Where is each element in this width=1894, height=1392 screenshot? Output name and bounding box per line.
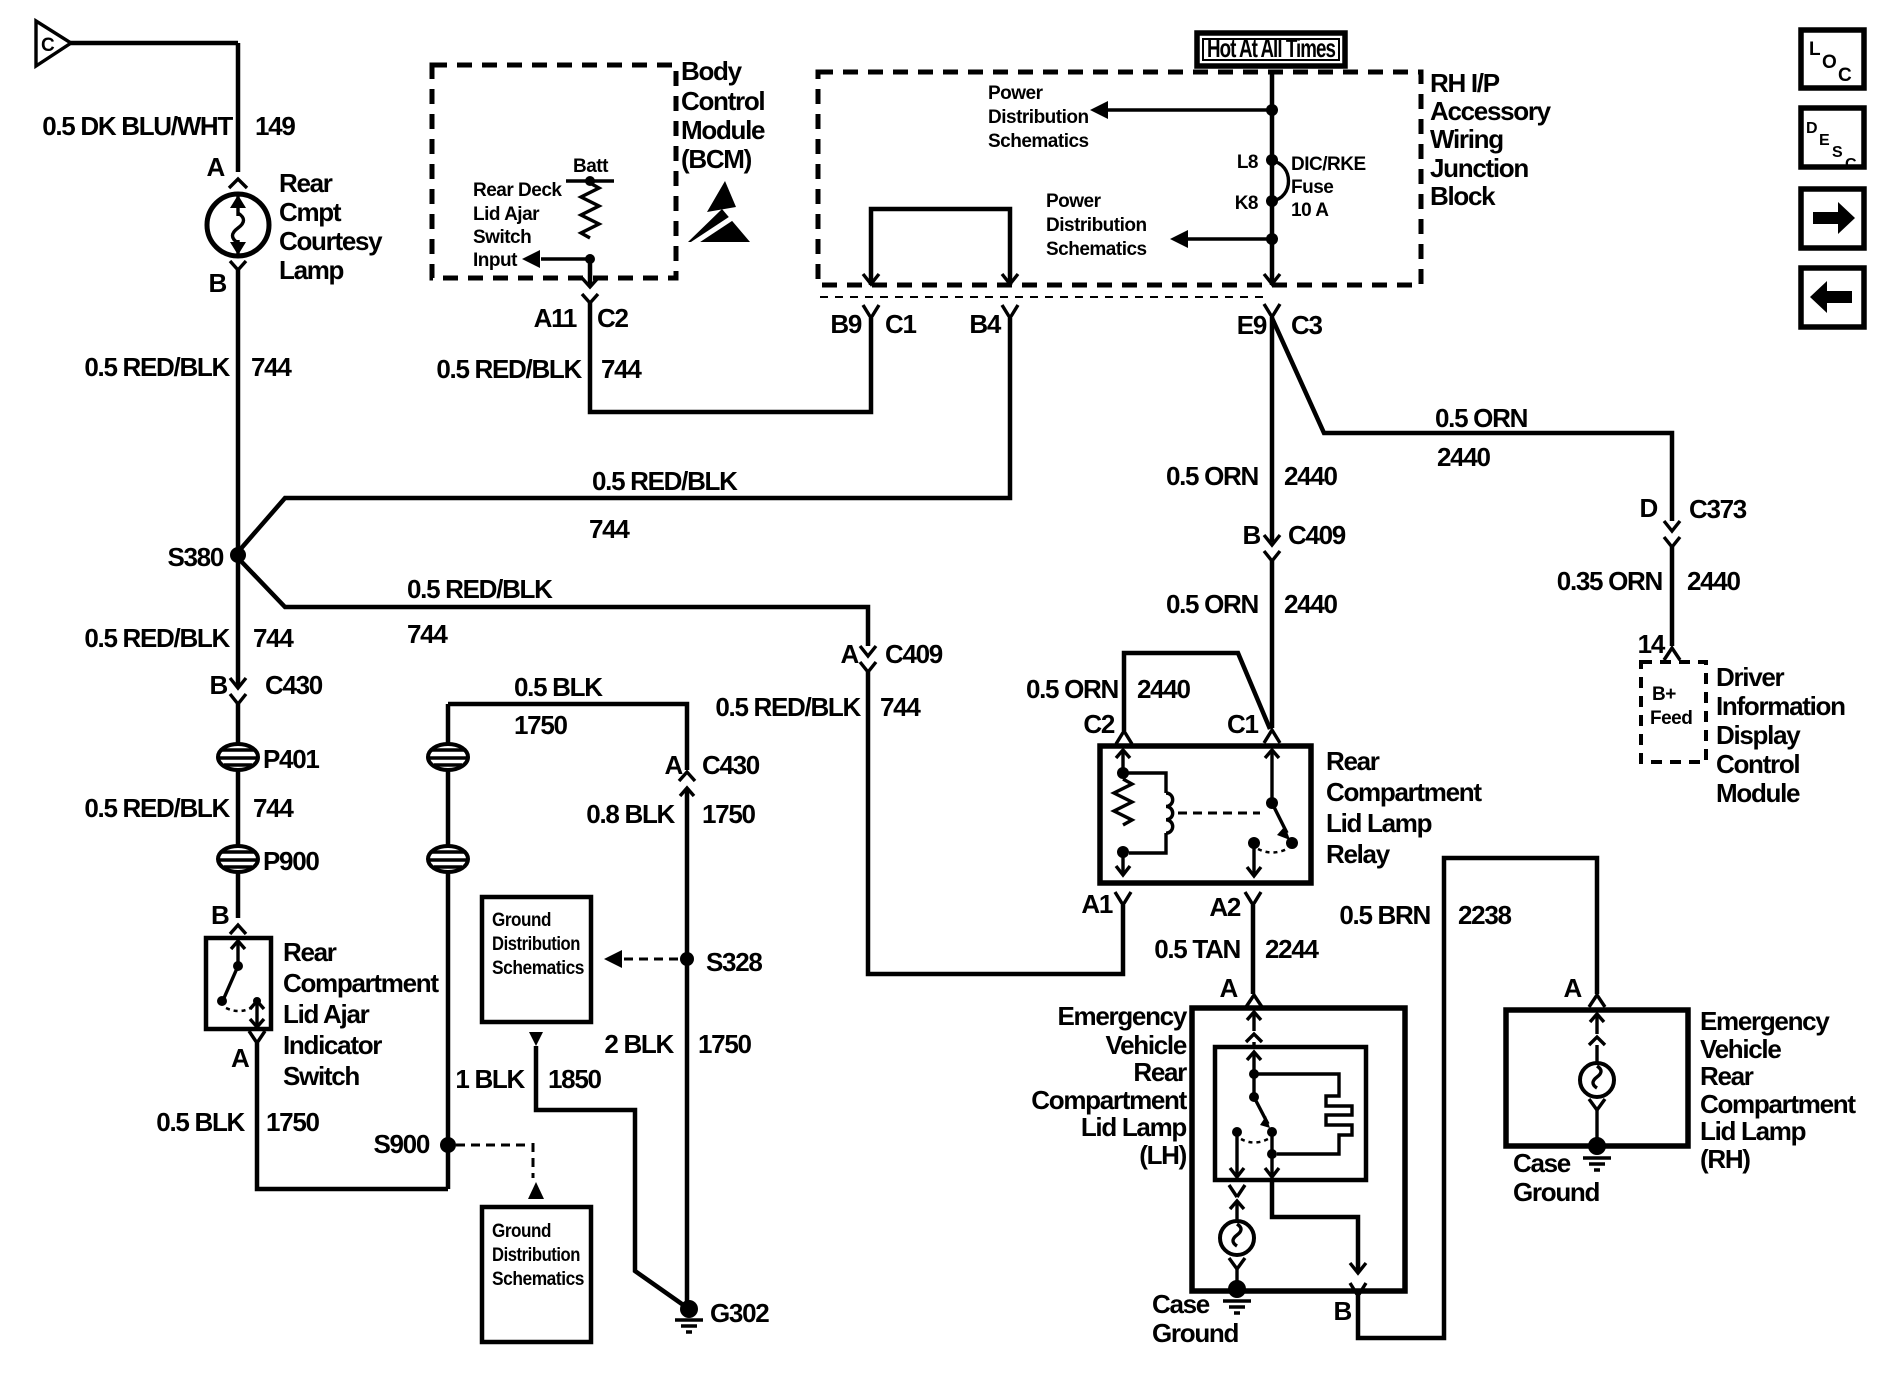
svg-text:Input: Input: [473, 250, 518, 271]
svg-text:Body: Body: [681, 56, 743, 86]
svg-text:14: 14: [1638, 629, 1666, 659]
svg-text:Information: Information: [1716, 691, 1845, 721]
svg-text:Hot At All Times: Hot At All Times: [1207, 33, 1336, 63]
svg-text:L8: L8: [1237, 152, 1258, 173]
svg-text:Distribution: Distribution: [1046, 215, 1147, 236]
svg-text:Relay: Relay: [1326, 839, 1391, 869]
svg-text:0.5 ORN: 0.5 ORN: [1166, 461, 1259, 491]
svg-text:S: S: [1832, 144, 1843, 161]
svg-text:1750: 1750: [514, 710, 567, 740]
svg-text:Accessory: Accessory: [1430, 96, 1552, 126]
svg-text:C3: C3: [1291, 310, 1322, 340]
svg-text:E9: E9: [1237, 310, 1267, 340]
svg-text:B: B: [1334, 1296, 1352, 1326]
svg-text:P401: P401: [263, 744, 319, 774]
svg-text:Rear: Rear: [1133, 1057, 1187, 1087]
svg-text:A: A: [841, 639, 860, 669]
svg-text:1750: 1750: [698, 1029, 751, 1059]
svg-text:C: C: [1845, 156, 1857, 173]
svg-text:0.5 BRN: 0.5 BRN: [1339, 900, 1430, 930]
svg-text:B: B: [1243, 520, 1261, 550]
svg-text:Control: Control: [681, 86, 764, 116]
svg-text:C373: C373: [1689, 494, 1747, 524]
svg-text:C2: C2: [1083, 709, 1114, 739]
svg-text:Ground: Ground: [1513, 1177, 1599, 1207]
svg-text:(BCM): (BCM): [681, 144, 752, 174]
svg-text:744: 744: [407, 619, 448, 649]
svg-text:Compartment: Compartment: [1326, 777, 1482, 807]
svg-text:744: 744: [253, 793, 294, 823]
svg-text:A2: A2: [1209, 892, 1240, 922]
svg-text:(RH): (RH): [1700, 1144, 1750, 1174]
svg-text:Junction: Junction: [1430, 153, 1528, 183]
svg-text:Lamp: Lamp: [279, 255, 344, 285]
svg-text:Schematics: Schematics: [492, 1269, 584, 1290]
svg-text:Driver: Driver: [1716, 662, 1785, 692]
svg-text:10 A: 10 A: [1291, 200, 1329, 221]
svg-text:Schematics: Schematics: [988, 131, 1089, 152]
svg-text:P900: P900: [263, 846, 319, 876]
svg-text:Distribution: Distribution: [492, 1245, 580, 1266]
svg-text:D: D: [1806, 120, 1818, 137]
svg-text:Batt: Batt: [573, 156, 609, 177]
svg-text:C: C: [1838, 65, 1852, 86]
svg-text:Lid Lamp: Lid Lamp: [1326, 808, 1432, 838]
svg-text:1850: 1850: [548, 1064, 601, 1094]
svg-text:Module: Module: [1716, 778, 1800, 808]
svg-text:Case: Case: [1152, 1289, 1210, 1319]
svg-text:S380: S380: [167, 542, 223, 572]
svg-text:D: D: [1640, 493, 1658, 523]
svg-text:C430: C430: [702, 750, 760, 780]
svg-text:2440: 2440: [1284, 461, 1337, 491]
svg-text:Rear: Rear: [283, 937, 337, 967]
svg-text:E: E: [1819, 132, 1830, 149]
svg-text:B: B: [209, 268, 227, 298]
svg-text:Courtesy: Courtesy: [279, 226, 383, 256]
svg-text:0.5 DK BLU/WHT: 0.5 DK BLU/WHT: [42, 111, 233, 141]
svg-text:2440: 2440: [1437, 442, 1490, 472]
svg-text:Compartment: Compartment: [283, 968, 439, 998]
svg-text:744: 744: [251, 352, 292, 382]
svg-text:A: A: [665, 750, 684, 780]
svg-text:B+: B+: [1652, 684, 1676, 705]
svg-text:Vehicle: Vehicle: [1700, 1034, 1781, 1064]
svg-text:0.5 BLK: 0.5 BLK: [514, 672, 603, 702]
svg-text:Vehicle: Vehicle: [1105, 1030, 1186, 1060]
svg-text:0.5 RED/BLK: 0.5 RED/BLK: [592, 466, 738, 496]
svg-text:C430: C430: [265, 670, 323, 700]
svg-text:RH I/P: RH I/P: [1430, 68, 1500, 98]
svg-text:744: 744: [601, 354, 642, 384]
svg-text:(LH): (LH): [1139, 1140, 1186, 1170]
svg-text:Lid Ajar: Lid Ajar: [283, 999, 370, 1029]
svg-text:149: 149: [255, 111, 295, 141]
svg-text:Emergency: Emergency: [1700, 1006, 1830, 1036]
svg-text:Emergency: Emergency: [1058, 1001, 1188, 1031]
svg-text:744: 744: [253, 623, 294, 653]
svg-text:0.5 RED/BLK: 0.5 RED/BLK: [436, 354, 582, 384]
svg-text:Switch: Switch: [283, 1061, 359, 1091]
svg-text:C: C: [41, 35, 55, 56]
svg-text:Distribution: Distribution: [988, 107, 1089, 128]
svg-text:B4: B4: [969, 309, 1001, 339]
svg-text:Rear Deck: Rear Deck: [473, 180, 562, 201]
svg-text:Fuse: Fuse: [1291, 177, 1333, 198]
svg-text:2244: 2244: [1265, 934, 1319, 964]
svg-text:0.5 RED/BLK: 0.5 RED/BLK: [407, 574, 553, 604]
svg-text:C1: C1: [1227, 709, 1258, 739]
svg-text:A: A: [1220, 973, 1239, 1003]
svg-text:Block: Block: [1430, 181, 1496, 211]
svg-text:Schematics: Schematics: [492, 958, 584, 979]
svg-text:Ground: Ground: [1152, 1318, 1238, 1348]
svg-text:2 BLK: 2 BLK: [604, 1029, 674, 1059]
svg-text:C1: C1: [885, 309, 916, 339]
svg-text:0.5 ORN: 0.5 ORN: [1166, 589, 1259, 619]
svg-text:Power: Power: [1046, 191, 1102, 212]
svg-text:1750: 1750: [702, 799, 755, 829]
svg-text:744: 744: [589, 514, 630, 544]
svg-text:0.5 RED/BLK: 0.5 RED/BLK: [84, 793, 230, 823]
svg-text:S900: S900: [373, 1129, 429, 1159]
svg-text:A: A: [231, 1043, 250, 1073]
svg-text:Cmpt: Cmpt: [279, 197, 342, 227]
svg-text:B: B: [210, 670, 228, 700]
svg-text:L: L: [1809, 39, 1821, 60]
svg-text:Control: Control: [1716, 749, 1799, 779]
svg-text:Lid Lamp: Lid Lamp: [1700, 1116, 1806, 1146]
svg-text:Indicator: Indicator: [283, 1030, 382, 1060]
svg-text:Compartment: Compartment: [1031, 1085, 1187, 1115]
svg-text:0.5 RED/BLK: 0.5 RED/BLK: [84, 352, 230, 382]
svg-text:A: A: [207, 152, 226, 182]
svg-text:Lid Lamp: Lid Lamp: [1081, 1112, 1187, 1142]
svg-text:Power: Power: [988, 83, 1044, 104]
svg-text:Compartment: Compartment: [1700, 1089, 1856, 1119]
svg-text:Switch: Switch: [473, 227, 531, 248]
svg-text:Wiring: Wiring: [1430, 124, 1503, 154]
svg-text:1 BLK: 1 BLK: [455, 1064, 525, 1094]
svg-text:O: O: [1822, 52, 1836, 73]
svg-text:0.5 BLK: 0.5 BLK: [156, 1107, 245, 1137]
svg-text:Rear: Rear: [1326, 746, 1380, 776]
svg-text:G302: G302: [710, 1298, 769, 1328]
svg-text:2440: 2440: [1687, 566, 1740, 596]
svg-text:A11: A11: [534, 303, 577, 333]
svg-text:Feed: Feed: [1650, 708, 1692, 729]
svg-text:Rear: Rear: [1700, 1061, 1754, 1091]
svg-text:Case: Case: [1513, 1148, 1571, 1178]
svg-text:DIC/RKE: DIC/RKE: [1291, 154, 1366, 175]
svg-text:2440: 2440: [1137, 674, 1190, 704]
svg-text:Lid Ajar: Lid Ajar: [473, 204, 540, 225]
svg-text:744: 744: [880, 692, 921, 722]
svg-text:0.5 ORN: 0.5 ORN: [1435, 403, 1528, 433]
svg-text:B9: B9: [830, 309, 861, 339]
svg-text:S328: S328: [706, 947, 762, 977]
svg-text:1750: 1750: [266, 1107, 319, 1137]
svg-text:0.5 RED/BLK: 0.5 RED/BLK: [84, 623, 230, 653]
svg-text:Ground: Ground: [492, 1221, 551, 1242]
svg-text:B: B: [211, 900, 229, 930]
svg-text:K8: K8: [1235, 193, 1258, 214]
svg-text:0.5 ORN: 0.5 ORN: [1026, 674, 1119, 704]
svg-text:C409: C409: [885, 639, 943, 669]
svg-text:Display: Display: [1716, 720, 1801, 750]
svg-text:0.5 RED/BLK: 0.5 RED/BLK: [715, 692, 861, 722]
svg-text:0.35 ORN: 0.35 ORN: [1557, 566, 1663, 596]
svg-text:0.8 BLK: 0.8 BLK: [586, 799, 675, 829]
svg-text:Schematics: Schematics: [1046, 239, 1147, 260]
svg-text:A: A: [1564, 973, 1583, 1003]
svg-text:C2: C2: [597, 303, 628, 333]
svg-text:Distribution: Distribution: [492, 934, 580, 955]
svg-text:C409: C409: [1288, 520, 1346, 550]
svg-text:2238: 2238: [1458, 900, 1511, 930]
svg-text:Module: Module: [681, 115, 765, 145]
svg-text:A1: A1: [1081, 889, 1112, 919]
svg-text:0.5 TAN: 0.5 TAN: [1154, 934, 1240, 964]
svg-text:Rear: Rear: [279, 168, 333, 198]
svg-text:Ground: Ground: [492, 910, 551, 931]
svg-text:2440: 2440: [1284, 589, 1337, 619]
